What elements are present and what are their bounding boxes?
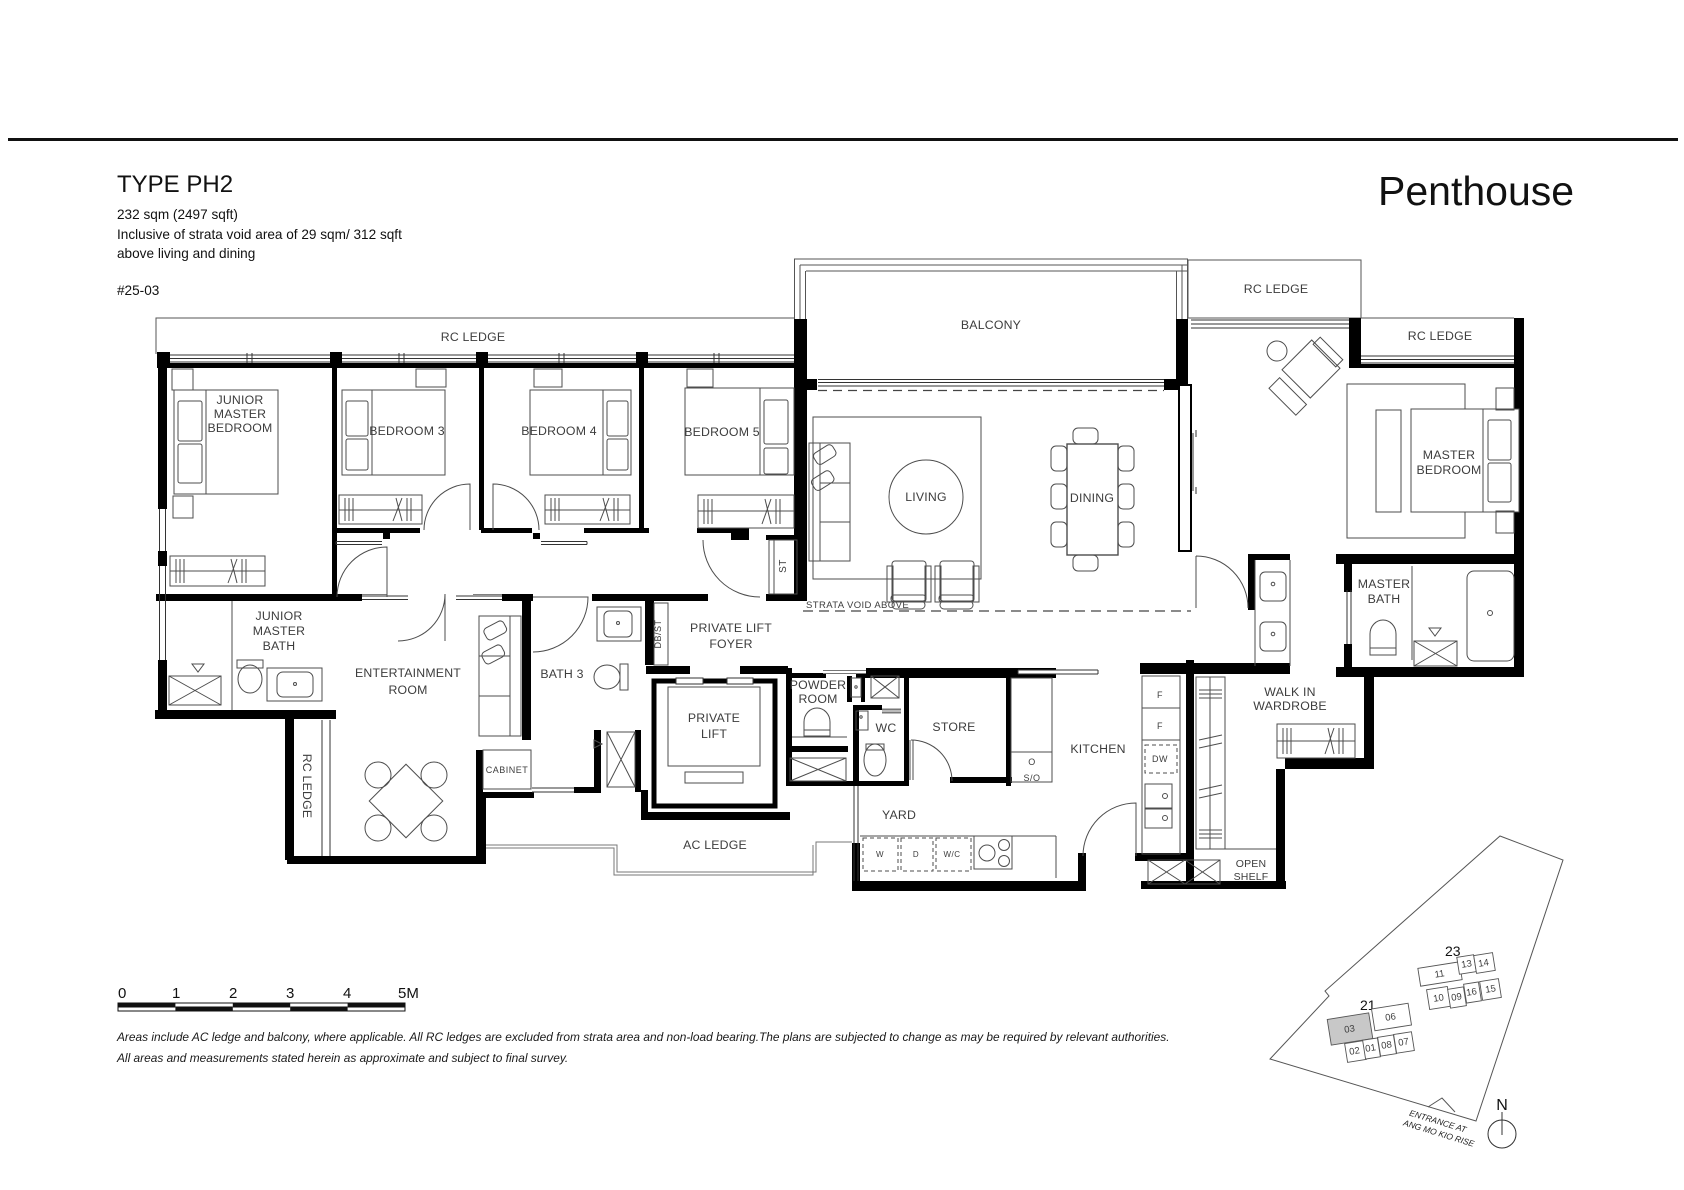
svg-text:CABINET: CABINET bbox=[486, 765, 529, 775]
svg-text:SHELF: SHELF bbox=[1234, 871, 1269, 883]
svg-text:STORE: STORE bbox=[932, 720, 975, 734]
svg-text:MASTER: MASTER bbox=[1423, 448, 1475, 462]
svg-text:POWDER: POWDER bbox=[790, 678, 847, 692]
svg-text:WALK IN: WALK IN bbox=[1264, 685, 1316, 699]
svg-text:F: F bbox=[1157, 721, 1163, 731]
svg-text:YARD: YARD bbox=[882, 808, 916, 822]
svg-text:Areas include AC ledge and bal: Areas include AC ledge and balcony, wher… bbox=[116, 1030, 1170, 1044]
svg-text:07: 07 bbox=[1398, 1036, 1410, 1049]
svg-text:0: 0 bbox=[118, 985, 126, 1002]
svg-text:4: 4 bbox=[343, 985, 351, 1002]
svg-text:BEDROOM 4: BEDROOM 4 bbox=[521, 424, 597, 438]
svg-text:W: W bbox=[876, 850, 884, 859]
svg-text:All areas and measurements sta: All areas and measurements stated herein… bbox=[116, 1051, 568, 1065]
svg-text:N: N bbox=[1496, 1097, 1508, 1114]
svg-text:F: F bbox=[1157, 690, 1163, 700]
svg-text:O: O bbox=[1028, 757, 1036, 767]
svg-text:above living and dining: above living and dining bbox=[117, 246, 255, 261]
svg-text:02: 02 bbox=[1349, 1045, 1361, 1058]
svg-text:MASTER: MASTER bbox=[253, 624, 305, 638]
svg-text:BATH: BATH bbox=[1368, 592, 1401, 606]
svg-text:ROOM: ROOM bbox=[388, 683, 427, 697]
svg-text:PRIVATE LIFT: PRIVATE LIFT bbox=[690, 621, 772, 635]
svg-text:3: 3 bbox=[286, 985, 294, 1002]
svg-text:S/O: S/O bbox=[1023, 773, 1040, 783]
svg-text:14: 14 bbox=[1478, 957, 1490, 970]
svg-text:232 sqm (2497 sqft): 232 sqm (2497 sqft) bbox=[117, 207, 238, 222]
svg-text:DW: DW bbox=[1152, 754, 1168, 764]
svg-text:RC LEDGE: RC LEDGE bbox=[1408, 329, 1472, 343]
svg-text:WARDROBE: WARDROBE bbox=[1253, 699, 1327, 713]
svg-text:01: 01 bbox=[1365, 1042, 1377, 1055]
svg-text:06: 06 bbox=[1385, 1011, 1397, 1024]
svg-text:BEDROOM: BEDROOM bbox=[1417, 463, 1482, 477]
svg-text:16: 16 bbox=[1466, 986, 1478, 999]
svg-text:10: 10 bbox=[1433, 992, 1445, 1005]
svg-text:03: 03 bbox=[1344, 1023, 1356, 1036]
svg-text:BEDROOM: BEDROOM bbox=[208, 421, 273, 435]
svg-text:W/C: W/C bbox=[943, 850, 960, 859]
svg-text:DINING: DINING bbox=[1070, 491, 1114, 505]
svg-text:JUNIOR: JUNIOR bbox=[256, 609, 303, 623]
svg-text:11: 11 bbox=[1434, 968, 1445, 980]
svg-text:D: D bbox=[913, 850, 919, 859]
svg-text:23: 23 bbox=[1445, 943, 1461, 959]
svg-text:08: 08 bbox=[1381, 1039, 1393, 1052]
svg-text:AC LEDGE: AC LEDGE bbox=[683, 838, 747, 852]
svg-text:ST: ST bbox=[778, 559, 789, 573]
svg-text:RC LEDGE: RC LEDGE bbox=[300, 754, 314, 818]
svg-text:LIFT: LIFT bbox=[701, 727, 727, 741]
svg-text:BEDROOM 3: BEDROOM 3 bbox=[369, 424, 445, 438]
svg-text:ENTERTAINMENT: ENTERTAINMENT bbox=[355, 666, 461, 680]
svg-text:1: 1 bbox=[172, 985, 180, 1002]
svg-text:BEDROOM 5: BEDROOM 5 bbox=[684, 425, 760, 439]
svg-text:MASTER: MASTER bbox=[1358, 577, 1410, 591]
svg-text:JUNIOR: JUNIOR bbox=[217, 393, 264, 407]
svg-text:LIVING: LIVING bbox=[905, 490, 947, 504]
svg-text:BATH 3: BATH 3 bbox=[540, 667, 583, 681]
svg-text:TYPE PH2: TYPE PH2 bbox=[117, 171, 233, 198]
svg-text:15: 15 bbox=[1485, 983, 1497, 996]
svg-text:OPEN: OPEN bbox=[1236, 858, 1267, 870]
svg-text:Inclusive of strata void area: Inclusive of strata void area of 29 sqm/… bbox=[117, 227, 402, 242]
svg-text:13: 13 bbox=[1461, 958, 1473, 971]
svg-text:BALCONY: BALCONY bbox=[961, 318, 1021, 332]
svg-text:FOYER: FOYER bbox=[709, 637, 752, 651]
svg-text:MASTER: MASTER bbox=[214, 407, 266, 421]
svg-text:RC LEDGE: RC LEDGE bbox=[1244, 282, 1308, 296]
svg-text:Penthouse: Penthouse bbox=[1378, 168, 1574, 214]
svg-text:2: 2 bbox=[229, 985, 237, 1002]
svg-text:09: 09 bbox=[1451, 991, 1463, 1004]
svg-text:KITCHEN: KITCHEN bbox=[1070, 742, 1125, 756]
svg-text:WC: WC bbox=[876, 721, 897, 735]
svg-text:BATH: BATH bbox=[263, 639, 296, 653]
svg-text:PRIVATE: PRIVATE bbox=[688, 711, 740, 725]
svg-text:DB/ST: DB/ST bbox=[653, 619, 663, 648]
svg-text:5M: 5M bbox=[398, 985, 419, 1002]
svg-text:#25-03: #25-03 bbox=[117, 283, 159, 298]
svg-text:RC LEDGE: RC LEDGE bbox=[441, 330, 505, 344]
svg-text:ROOM: ROOM bbox=[798, 692, 837, 706]
